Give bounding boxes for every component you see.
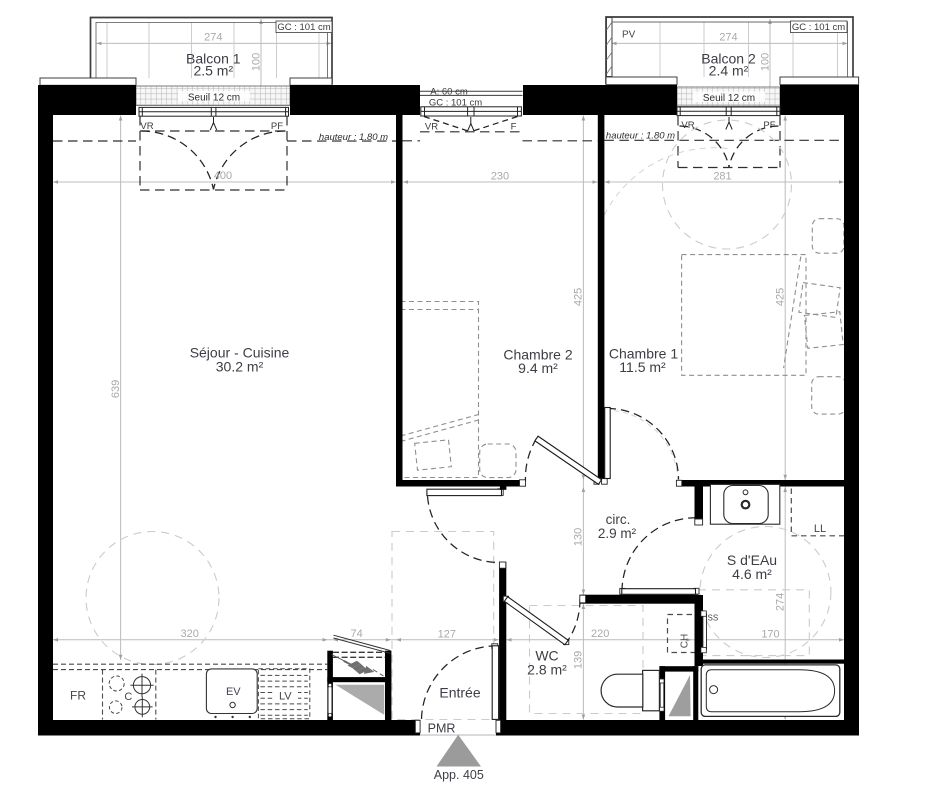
svg-text:274: 274 — [719, 32, 737, 44]
svg-text:LV: LV — [279, 691, 292, 703]
svg-text:LL: LL — [814, 523, 826, 535]
svg-text:2.8 m²: 2.8 m² — [527, 662, 567, 678]
svg-text:139: 139 — [573, 651, 585, 669]
svg-text:PF: PF — [271, 121, 283, 132]
svg-text:400: 400 — [214, 170, 232, 182]
svg-text:425: 425 — [775, 288, 787, 306]
svg-text:2.4 m²: 2.4 m² — [709, 63, 749, 79]
svg-text:220: 220 — [591, 628, 609, 640]
svg-text:SS: SS — [708, 614, 719, 623]
svg-text:230: 230 — [491, 171, 509, 183]
svg-text:circ.: circ. — [606, 512, 631, 527]
svg-text:GC : 101 cm: GC : 101 cm — [277, 22, 330, 33]
svg-text:PV: PV — [622, 30, 636, 41]
svg-text:130: 130 — [573, 528, 585, 546]
svg-text:2.9 m²: 2.9 m² — [598, 526, 637, 541]
svg-text:PF: PF — [763, 120, 775, 131]
svg-text:2.5 m²: 2.5 m² — [193, 63, 233, 79]
svg-text:274: 274 — [775, 593, 787, 611]
svg-text:hauteur : 1.80 m: hauteur : 1.80 m — [606, 131, 675, 142]
svg-text:hauteur : 1.80 m: hauteur : 1.80 m — [319, 132, 388, 143]
svg-text:Entrée: Entrée — [439, 685, 480, 701]
svg-text:425: 425 — [573, 288, 585, 306]
svg-text:EV: EV — [226, 686, 241, 698]
svg-text:9.4 m²: 9.4 m² — [518, 360, 558, 376]
svg-text:274: 274 — [204, 32, 222, 44]
svg-text:A: 60 cm: A: 60 cm — [430, 86, 468, 97]
svg-text:GC : 101 cm: GC : 101 cm — [792, 22, 845, 33]
svg-text:320: 320 — [181, 628, 199, 640]
svg-text:Seuil 12 cm: Seuil 12 cm — [703, 93, 755, 104]
svg-text:100: 100 — [251, 53, 263, 71]
svg-text:PMR: PMR — [428, 722, 456, 736]
svg-text:127: 127 — [438, 629, 456, 641]
svg-text:100: 100 — [760, 53, 772, 71]
svg-text:App. 405: App. 405 — [434, 768, 484, 782]
svg-text:11.5 m²: 11.5 m² — [619, 359, 666, 375]
svg-text:CH: CH — [680, 634, 691, 648]
svg-text:281: 281 — [713, 171, 731, 183]
svg-text:F: F — [511, 122, 517, 133]
svg-text:639: 639 — [110, 380, 122, 398]
svg-text:FR: FR — [70, 689, 86, 703]
svg-text:30.2 m²: 30.2 m² — [216, 359, 264, 375]
svg-text:VR: VR — [425, 122, 438, 133]
svg-text:170: 170 — [761, 629, 779, 641]
svg-text:VR: VR — [681, 120, 694, 131]
svg-text:74: 74 — [350, 628, 362, 640]
svg-text:Seuil 12 cm: Seuil 12 cm — [188, 93, 240, 104]
svg-text:VR: VR — [140, 121, 153, 132]
svg-text:C: C — [124, 691, 132, 703]
svg-text:4.6 m²: 4.6 m² — [732, 566, 772, 582]
